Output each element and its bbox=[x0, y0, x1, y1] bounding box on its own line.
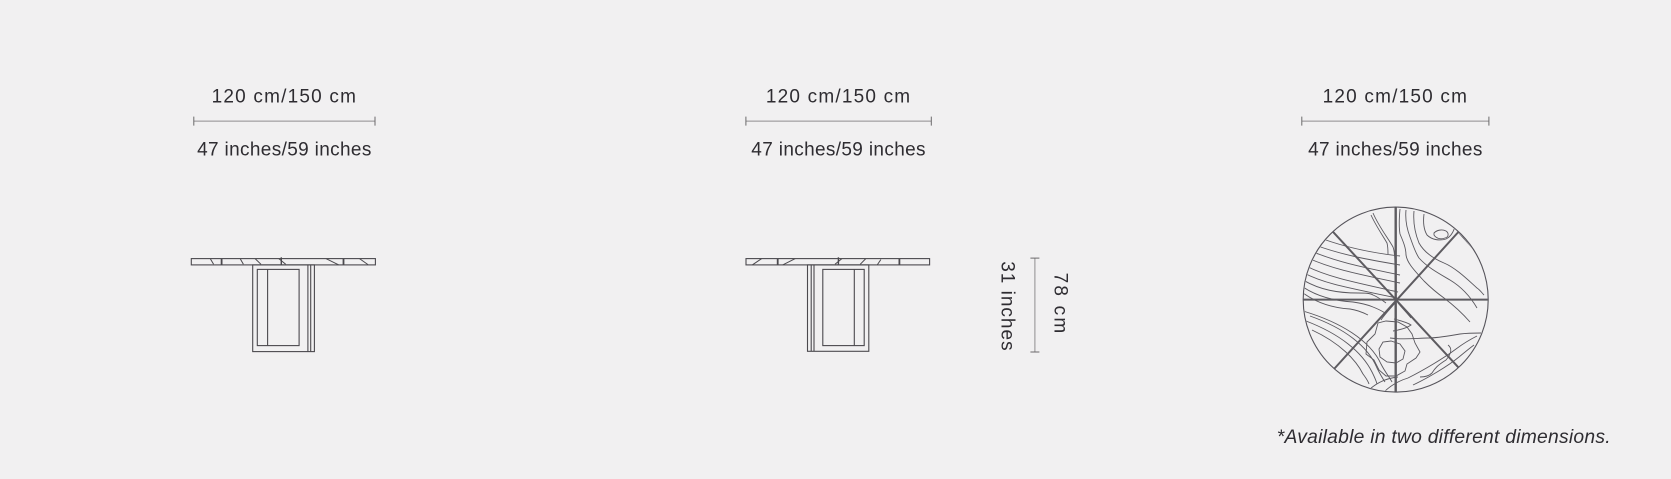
svg-text:47 inches/59 inches: 47 inches/59 inches bbox=[197, 140, 372, 161]
svg-text:47 inches/59 inches: 47 inches/59 inches bbox=[1308, 140, 1483, 161]
svg-text:47 inches/59 inches: 47 inches/59 inches bbox=[751, 140, 926, 161]
svg-text:120 cm/150 cm: 120 cm/150 cm bbox=[766, 87, 912, 108]
svg-text:120 cm/150 cm: 120 cm/150 cm bbox=[1323, 87, 1469, 108]
svg-text:*Available in two different di: *Available in two different dimensions. bbox=[1277, 427, 1611, 448]
svg-text:120 cm/150 cm: 120 cm/150 cm bbox=[212, 87, 358, 108]
svg-text:78 cm: 78 cm bbox=[1049, 273, 1070, 336]
svg-text:31 inches: 31 inches bbox=[996, 261, 1017, 351]
